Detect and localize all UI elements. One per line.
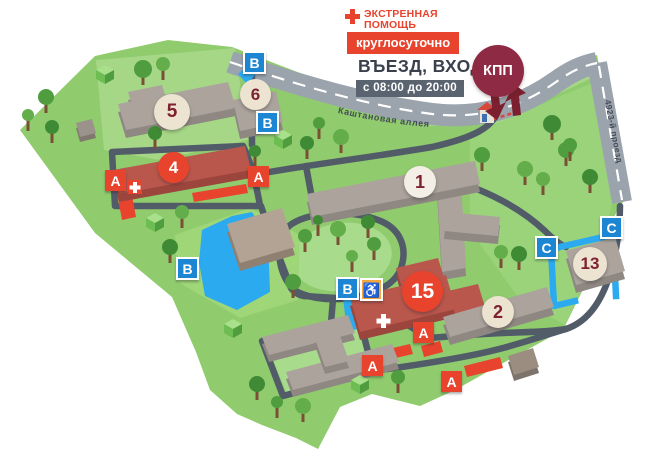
entrance-label: ВЪЕЗД, ВХОД [358,56,483,77]
zone-marker-a: А [413,322,434,343]
building-circle-4: 4 [158,152,189,183]
round-the-clock-badge: круглосуточно [347,32,459,54]
map-canvas: Каштановая аллея 4923-й проезд [0,0,650,461]
wheelchair-icon: ♿ [360,278,383,301]
hospital-campus-map: Каштановая аллея 4923-й проезд ЭКСТРЕННА… [0,0,650,461]
zone-marker-a: А [362,355,383,376]
zone-marker-b: В [176,257,199,280]
checkpoint-badge: КПП [472,45,524,97]
building-circle-15: 15 [402,271,443,312]
building-circle-2: 2 [482,296,514,328]
building-circle-1: 1 [404,166,436,198]
zone-marker-c: С [600,216,623,239]
emergency-line2: ПОМОЩЬ [364,20,438,31]
zone-marker-a: А [105,170,126,191]
zone-marker-b: В [336,277,359,300]
medical-cross-icon [128,180,142,194]
building-circle-13: 13 [573,247,607,281]
zone-marker-a: А [441,371,462,392]
building-circle-6: 6 [240,79,271,110]
zone-marker-b: В [256,111,279,134]
building-circle-5: 5 [154,94,190,130]
zone-marker-a: А [248,166,269,187]
zone-marker-c: С [535,236,558,259]
red-cross-icon [345,9,360,29]
emergency-help-label: ЭКСТРЕННАЯ ПОМОЩЬ [345,9,438,32]
zone-marker-b: В [243,51,266,74]
entrance-hours-badge: с 08:00 до 20:00 [356,80,464,97]
